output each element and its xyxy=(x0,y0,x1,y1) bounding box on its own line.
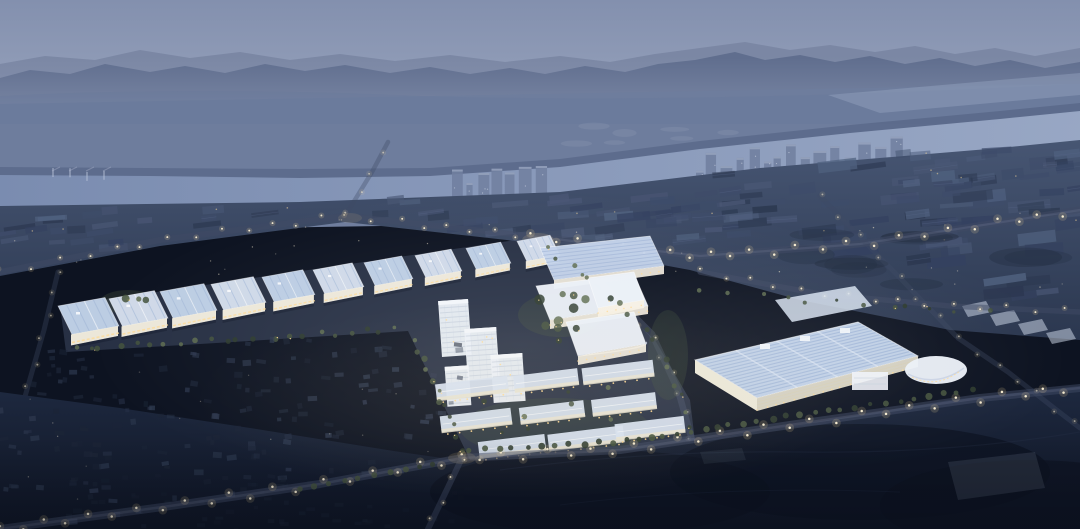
distant-town-patch xyxy=(578,123,609,130)
industrial-roof xyxy=(50,227,66,235)
skyline-tower-top xyxy=(706,153,716,155)
tower-window-light xyxy=(454,187,455,188)
yard-light xyxy=(937,173,939,175)
streetlight xyxy=(361,191,363,193)
bottom-vignette xyxy=(0,438,1080,529)
industrial-roof xyxy=(1039,188,1064,196)
streetlight xyxy=(59,257,61,259)
streetlight xyxy=(845,240,848,243)
distant-town-patch xyxy=(660,127,689,132)
yard-light xyxy=(1075,219,1077,221)
skyline-tower-top xyxy=(491,169,502,171)
village-house xyxy=(48,349,56,353)
village-house xyxy=(93,397,102,402)
skyline-tower-top xyxy=(774,157,781,159)
skyline-tower-top xyxy=(750,147,760,149)
village-light xyxy=(52,422,53,423)
streetlight xyxy=(860,234,862,236)
village-house xyxy=(77,358,85,362)
tower-window-light xyxy=(788,152,789,153)
distant-town-patch xyxy=(670,136,693,141)
streetlight xyxy=(59,271,61,273)
tower-window-light xyxy=(484,188,485,189)
streetlight xyxy=(1074,420,1076,422)
distant-town-patch xyxy=(604,140,625,145)
skyline-tower-top xyxy=(452,170,463,172)
skyline-tower-top xyxy=(813,151,826,153)
streetlight xyxy=(996,218,999,221)
tower-window-light xyxy=(769,163,770,164)
distant-light xyxy=(14,240,15,241)
tower-window-light xyxy=(755,156,756,157)
streetlight xyxy=(1018,220,1021,223)
tower-window-light xyxy=(525,185,526,186)
skyline-tower-top xyxy=(505,173,515,175)
dark-field-patch xyxy=(1004,250,1072,266)
tower-window-light xyxy=(866,153,867,154)
streetlight xyxy=(1036,213,1039,216)
tower-window-light xyxy=(714,165,715,166)
village-house xyxy=(47,372,52,376)
streetlight xyxy=(36,364,38,366)
distant-light xyxy=(76,261,77,262)
village-house xyxy=(53,409,59,414)
skyline-tower-top xyxy=(764,161,771,163)
streetlight xyxy=(974,228,977,231)
streetlight xyxy=(1053,411,1055,413)
wharf-crane xyxy=(86,172,88,181)
streetlight xyxy=(923,235,926,238)
skyline-tower-top xyxy=(519,167,532,169)
tower-window-light xyxy=(755,167,756,168)
skyline-tower-top xyxy=(536,166,547,168)
skyline-tower-top xyxy=(858,143,870,145)
streetlight xyxy=(30,268,32,270)
tower-window-light xyxy=(487,189,488,190)
village-light xyxy=(29,399,30,400)
skyline-tower-top xyxy=(786,144,796,146)
village-house xyxy=(69,370,77,375)
streetlight xyxy=(24,385,26,387)
tower-window-light xyxy=(900,144,901,145)
streetlight xyxy=(221,228,223,230)
tower-window-light xyxy=(542,174,543,175)
streetlight xyxy=(1061,215,1064,218)
distant-light xyxy=(859,230,860,231)
distant-light xyxy=(1062,283,1063,284)
streetlight xyxy=(1064,307,1066,309)
industrial-roof xyxy=(910,151,932,162)
skyline-tower-top xyxy=(891,137,903,139)
streetlight xyxy=(898,234,901,237)
yard-light xyxy=(216,209,218,211)
streetlight xyxy=(195,236,197,238)
distant-light xyxy=(1039,286,1040,287)
distant-light xyxy=(1019,213,1020,214)
rendering-image xyxy=(0,0,1080,529)
skyline-tower-top xyxy=(721,166,733,168)
streetlight xyxy=(51,291,53,293)
skyline-tower-top xyxy=(875,147,886,149)
tower-window-light xyxy=(896,141,897,142)
village-house xyxy=(58,379,63,383)
village-house xyxy=(51,364,55,368)
skyline-tower-top xyxy=(478,173,489,175)
streetlight xyxy=(38,337,40,339)
tower-window-light xyxy=(741,163,742,164)
tower-window-light xyxy=(776,163,777,164)
village-house xyxy=(81,366,88,371)
village-house xyxy=(31,381,37,387)
yard-light xyxy=(960,177,962,179)
streetlight xyxy=(116,246,118,248)
village-house xyxy=(73,395,83,400)
distant-town-patch xyxy=(561,140,593,146)
skyline-tower-top xyxy=(696,171,704,173)
streetlight xyxy=(821,193,823,195)
streetlight xyxy=(139,246,141,248)
distant-light xyxy=(80,259,81,260)
roof-vent xyxy=(76,312,80,315)
yard-light xyxy=(1015,175,1017,177)
streetlight xyxy=(947,227,950,230)
streetlight xyxy=(368,173,370,175)
yard-light xyxy=(287,207,289,209)
village-house xyxy=(130,419,136,426)
tree xyxy=(75,345,79,349)
wharf-crane xyxy=(52,168,54,177)
distant-light xyxy=(873,227,874,228)
distant-town-patch xyxy=(717,130,739,135)
skyline-tower-top xyxy=(801,157,810,159)
yard-light xyxy=(925,152,927,154)
village-house xyxy=(37,392,47,396)
streetlight xyxy=(166,236,168,238)
streetlight xyxy=(382,152,384,154)
village-house xyxy=(55,431,65,436)
skyline-tower-top xyxy=(737,158,744,160)
village-house xyxy=(56,368,61,374)
yard-light xyxy=(62,228,64,230)
wharf-crane xyxy=(103,171,105,180)
industrial-roof xyxy=(101,206,118,215)
aerial-render-canvas xyxy=(0,0,1080,529)
village-light xyxy=(57,436,58,437)
industrial-roof xyxy=(67,225,85,233)
village-house xyxy=(89,375,94,379)
distant-town-patch xyxy=(612,129,636,137)
streetlight xyxy=(873,245,876,248)
industrial-roof xyxy=(137,217,152,224)
village-house xyxy=(62,377,67,383)
village-house xyxy=(29,416,36,422)
yard-light xyxy=(32,230,34,232)
skyline-tower-top xyxy=(830,146,839,148)
streetlight xyxy=(50,315,52,317)
streetlight xyxy=(90,255,92,257)
streetlight xyxy=(837,216,839,218)
streetlight xyxy=(1062,391,1065,394)
village-house xyxy=(49,356,55,361)
skyline-tower-top xyxy=(466,183,472,185)
yard-light xyxy=(930,169,932,171)
village-house xyxy=(0,407,4,413)
village-house xyxy=(24,430,29,435)
